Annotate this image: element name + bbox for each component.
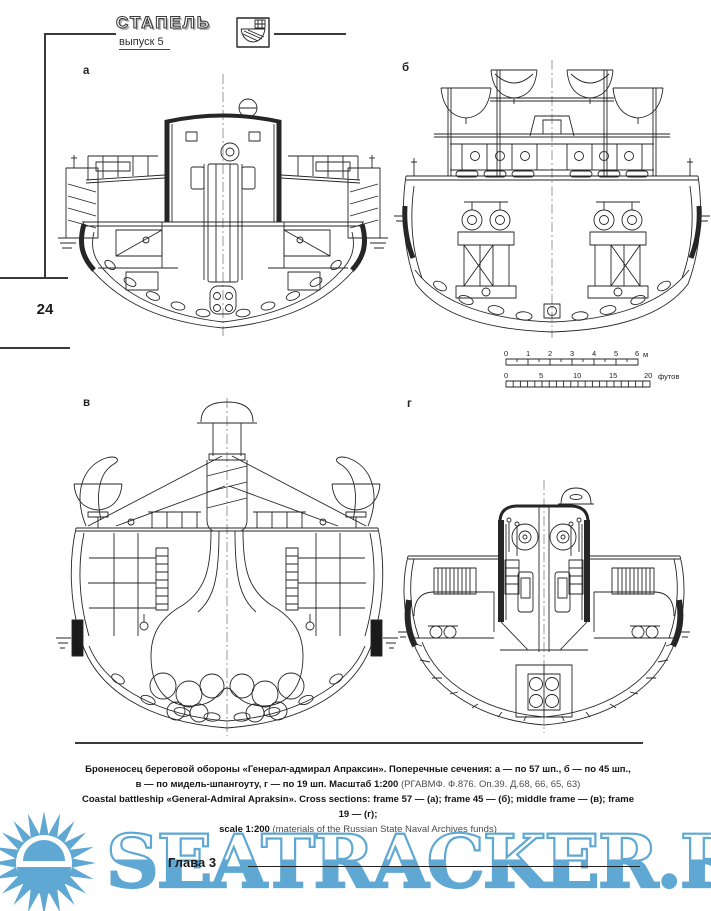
center-structure [406, 60, 698, 338]
svg-text:5: 5 [539, 371, 543, 380]
svg-text:5: 5 [614, 349, 618, 358]
scale-bar: 0 1 2 3 4 5 6 м 0 5 10 15 20 футов [498, 347, 688, 395]
hull-half [58, 120, 223, 328]
caption-rule [75, 742, 643, 744]
svg-text:15: 15 [609, 371, 617, 380]
svg-text:0: 0 [504, 349, 508, 358]
svg-text:0: 0 [504, 371, 508, 380]
svg-text:м: м [643, 350, 648, 359]
chapter-label: Глава 3 [168, 855, 216, 870]
caption-line-ru-2: в — по мидель-шпангоуту, г — по 19 шп. М… [76, 777, 640, 792]
header-rule-left [44, 33, 116, 35]
svg-text:2: 2 [548, 349, 552, 358]
hull-half [56, 456, 227, 728]
pagenum-rule-bottom [0, 347, 70, 349]
cross-section-b-drawing [394, 58, 710, 340]
cross-section-v-drawing [56, 398, 398, 738]
svg-text:3: 3 [570, 349, 574, 358]
svg-text:1: 1 [526, 349, 530, 358]
caption-line-ru-1: Броненосец береговой обороны «Генерал-ад… [76, 762, 640, 777]
svg-text:футов: футов [658, 372, 679, 381]
cross-section-a-drawing [58, 72, 388, 340]
stapel-hull-logo-icon [236, 17, 270, 48]
margin-vertical-rule [44, 33, 46, 278]
svg-text:10: 10 [573, 371, 581, 380]
series-title: СТАПЕЛЬ [116, 13, 211, 33]
header-rule-right [274, 33, 346, 35]
watermark-sun-icon [0, 806, 106, 911]
funnel-and-ventilator [197, 398, 257, 736]
caption-ru-2-archive-note: (РГАВМФ. Ф.876. Оп.39. Д.68, 66, 65, 63) [398, 779, 580, 790]
issue-number: выпуск 5 [119, 36, 170, 50]
svg-text:4: 4 [592, 349, 596, 358]
cross-section-g-drawing [398, 480, 690, 735]
scanned-book-page: СТАПЕЛЬ выпуск 5 24 а б в г [0, 0, 711, 911]
hull-half [398, 518, 544, 725]
page-number: 24 [28, 301, 62, 318]
caption-ru-2-main: в — по мидель-шпангоуту, г — по 19 шп. М… [136, 779, 399, 790]
caption-line-en-1: Coastal battleship «General-Admiral Apra… [76, 792, 640, 822]
svg-text:6: 6 [635, 349, 639, 358]
figure-label-g: г [407, 398, 412, 410]
hull-half [394, 70, 552, 332]
center-line [82, 74, 364, 338]
chapter-rule [248, 866, 640, 867]
svg-text:20: 20 [644, 371, 652, 380]
